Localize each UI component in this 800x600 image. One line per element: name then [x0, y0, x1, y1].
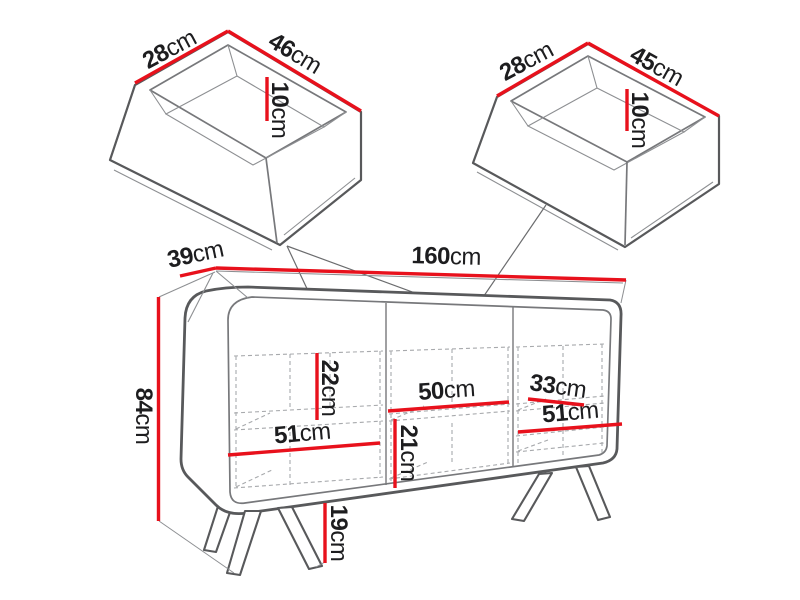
dim-label-drawerL-height: 10cm — [266, 82, 293, 139]
dim-label-drawerR-height: 10cm — [626, 92, 653, 149]
dim-line-width-160 — [216, 268, 626, 280]
dim-label-cabinet-width: 160cm — [411, 242, 481, 271]
cabinet-leg-mid-left — [278, 507, 322, 569]
dim-label-right-inner-width: 51cm — [541, 397, 600, 429]
cabinet-leg-front-right — [576, 466, 610, 520]
dim-label-mid-inner-height: 21cm — [395, 425, 422, 482]
dim-label-mid-inner-width: 50cm — [417, 375, 475, 406]
cabinet-leg-back-right — [512, 473, 552, 521]
dim-label-cabinet-height: 84cm — [130, 388, 157, 445]
dim-label-left-inner-width: 51cm — [273, 418, 332, 450]
diagram-canvas: 28cm 46cm 10cm 28cm 45cm 10cm 39cm 160cm… — [0, 0, 800, 600]
dim-label-leg-height: 19cm — [325, 505, 352, 562]
dim-label-left-inner-height: 22cm — [316, 360, 343, 417]
furniture-dimension-diagram: 28cm 46cm 10cm 28cm 45cm 10cm 39cm 160cm… — [0, 0, 800, 600]
cabinet-leg-front-left — [227, 511, 261, 575]
